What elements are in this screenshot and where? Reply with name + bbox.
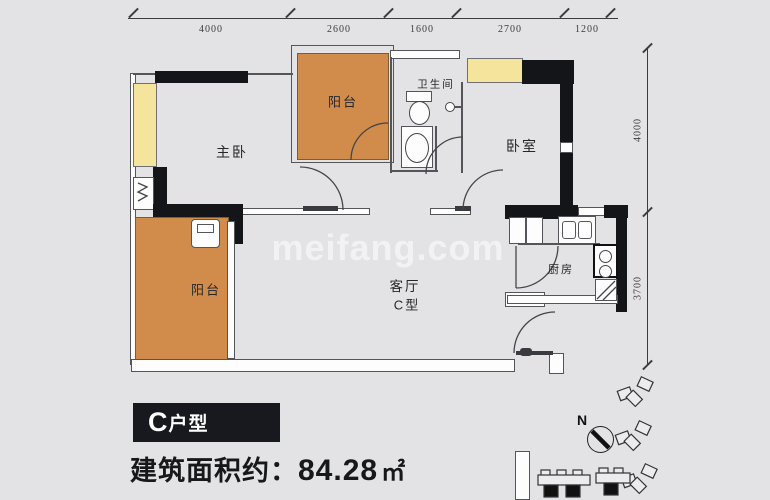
wall-bathroom-inner [435, 126, 437, 172]
building-row-icon [596, 468, 630, 495]
balcony-bottom-rail [227, 221, 235, 359]
area-text: 建筑面积约： 84.28 ㎡ [130, 449, 406, 488]
door-arc-bedroom [463, 170, 503, 210]
kitchen-cabinet [526, 217, 543, 244]
dim-line [128, 18, 618, 19]
room-label-bedroom: 卧室 [506, 136, 538, 156]
wall-bedroom-left [461, 82, 463, 173]
dim-tick [605, 8, 616, 19]
wall-master-top-black [155, 71, 248, 83]
dim-tick [451, 8, 462, 19]
wall-bedroom-topright-black [522, 60, 574, 84]
entry-door-handle [520, 348, 532, 356]
door-sill [303, 206, 338, 211]
dim-tick [383, 8, 394, 19]
building-slab-icon [515, 451, 530, 500]
bath-sink-basin [405, 133, 429, 163]
room-label-balcony-top: 阳台 [328, 92, 358, 111]
area-label: 建筑面积约： [130, 449, 298, 488]
dim-tick [285, 8, 296, 19]
toilet-bowl [409, 101, 430, 125]
dim-tick [128, 8, 139, 19]
watermark: meifang.com [271, 227, 504, 269]
window-bathroom-top [390, 50, 460, 59]
kitchen-sink-basin [578, 221, 592, 239]
door-sill [455, 206, 471, 211]
kitchen-sink-basin [562, 221, 576, 239]
window-master-left [133, 83, 157, 167]
wall-bedroom-right-black-a [560, 84, 573, 142]
building-row-icon [538, 470, 590, 497]
washing-machine-lid [197, 224, 214, 233]
building-cluster-icon [615, 421, 651, 451]
floor-plan-page: 4000 2600 1600 2700 1200 4000 3700 [0, 0, 770, 500]
compass-north-label: N [577, 412, 587, 428]
wall-entry-endcap [549, 353, 564, 374]
ac-platform [133, 177, 154, 210]
kitchen-cabinet [509, 217, 526, 244]
wall-bathroom-bottom [390, 170, 438, 172]
building-cluster-icon [621, 464, 657, 494]
room-label-balcony-bottom: 阳台 [191, 280, 221, 299]
wall-bathroom-left [390, 57, 392, 173]
unit-type-letter: C [148, 409, 169, 436]
room-label-bathroom: 卫生间 [417, 77, 455, 92]
area-unit: ㎡ [381, 452, 406, 487]
dim-label: 3700 [633, 276, 644, 300]
kitchen-corner-unit [595, 279, 617, 301]
dim-line [647, 48, 648, 365]
dim-label: 1600 [410, 24, 434, 35]
wall-bottom [131, 359, 515, 372]
dim-label: 2600 [327, 24, 351, 35]
dim-label: 1200 [575, 24, 599, 35]
room-label-kitchen: 厨房 [548, 261, 574, 277]
unit-type-suffix: 户型 [169, 415, 209, 434]
room-label-living-room-type: C型 [394, 295, 420, 314]
room-label-living-room: 客厅 [390, 275, 421, 295]
dim-label: 4000 [199, 24, 223, 35]
compass-circle [587, 426, 614, 453]
room-label-master-bedroom: 主卧 [216, 142, 248, 162]
shower-arm [454, 106, 463, 108]
door-arc-entrance [514, 312, 555, 353]
stove-burner [599, 265, 612, 278]
door-arc-master-bedroom [300, 167, 343, 210]
unit-type-badge: C 户型 [133, 403, 280, 442]
dim-label: 2700 [498, 24, 522, 35]
dim-tick [559, 8, 570, 19]
dim-label: 4000 [633, 118, 644, 142]
window-kitchen-top [578, 207, 606, 216]
wall-bedroom-right-gap [560, 142, 573, 153]
stove-burner [599, 250, 612, 263]
area-value: 84.28 [298, 454, 378, 488]
building-cluster-icon [617, 377, 653, 407]
window-bedroom-top [467, 58, 523, 83]
